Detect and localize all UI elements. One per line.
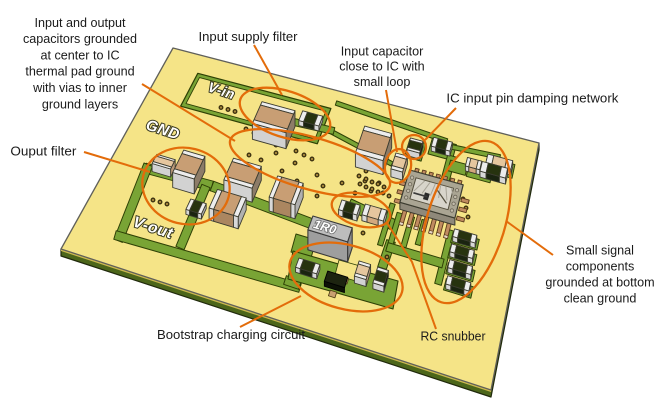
svg-text:components: components — [566, 259, 635, 273]
svg-text:with vias to inner: with vias to inner — [32, 81, 127, 95]
svg-text:Small signal: Small signal — [566, 243, 634, 257]
svg-text:Input and output: Input and output — [34, 16, 126, 30]
svg-text:clean ground: clean ground — [564, 291, 637, 305]
svg-text:capacitors grounded: capacitors grounded — [23, 32, 137, 46]
svg-text:Input capacitor: Input capacitor — [341, 45, 424, 59]
svg-text:at center to IC: at center to IC — [40, 48, 119, 62]
svg-text:RC snubber: RC snubber — [421, 330, 486, 344]
svg-text:grounded at bottom: grounded at bottom — [545, 275, 654, 289]
svg-text:Ouput filter: Ouput filter — [10, 144, 76, 158]
svg-text:ground layers: ground layers — [42, 97, 118, 111]
svg-text:close to IC with: close to IC with — [339, 60, 424, 74]
svg-text:Input supply filter: Input supply filter — [199, 30, 298, 44]
svg-text:thermal pad ground: thermal pad ground — [25, 65, 134, 79]
svg-text:small loop: small loop — [354, 75, 411, 89]
svg-text:IC input pin damping network: IC input pin damping network — [446, 92, 619, 106]
svg-text:Bootstrap charging circuit: Bootstrap charging circuit — [157, 328, 306, 342]
